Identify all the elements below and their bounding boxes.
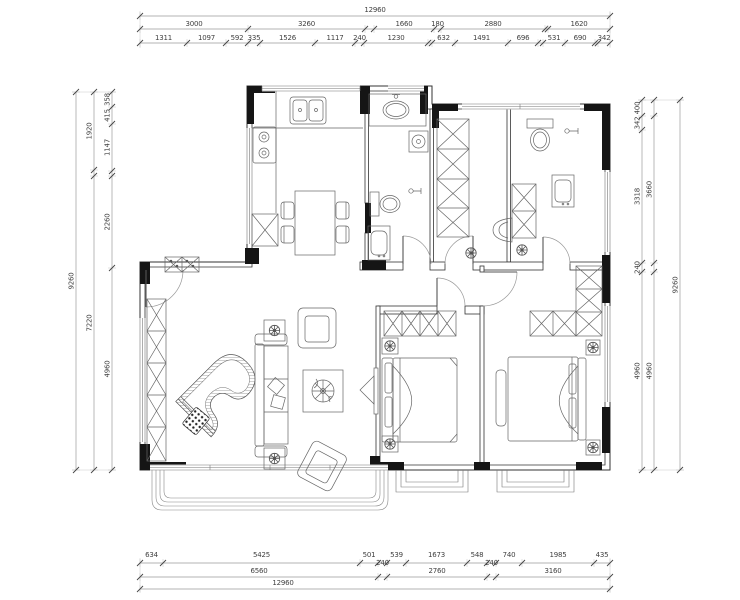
dim-chain: 656027603160 (137, 567, 613, 581)
dim-label: 4960 (634, 362, 642, 379)
dim-chain: 9260 (672, 97, 685, 473)
dim-label: 1147 (104, 139, 112, 156)
entry-shoe-cabinet (165, 257, 199, 272)
interior-walls (360, 91, 610, 464)
bedroom-1 (382, 311, 457, 452)
lamp-icon (588, 342, 598, 352)
dim-label: 1985 (549, 551, 566, 559)
kitchen-sink (290, 97, 326, 124)
dim-label: 335 (248, 34, 261, 42)
dim-label: 240 (376, 559, 389, 567)
storage-cabinet (512, 184, 536, 238)
bed (382, 358, 457, 442)
dim-chain: 30003260166018028801620 (137, 20, 613, 33)
dim-chain: 40034233182404960 (634, 97, 647, 473)
floor-drain-icon (517, 245, 527, 255)
cooktop (253, 127, 276, 163)
bedroom-2 (496, 266, 602, 455)
toilet (370, 192, 400, 216)
living-room (147, 257, 378, 493)
dim-chain: 12960 (137, 6, 613, 20)
dim-label: 1117 (326, 34, 343, 42)
dim-label: 548 (471, 551, 484, 559)
dim-label: 1660 (395, 20, 412, 28)
bathroom-1 (368, 94, 428, 260)
vanity (552, 175, 574, 207)
coffee-table (303, 370, 343, 412)
sofa (255, 334, 288, 457)
tv-unit (360, 368, 378, 414)
toilet (527, 119, 553, 151)
dim-chain: 36604960 (646, 97, 659, 473)
extension-lines (72, 11, 684, 592)
dim-label: 1673 (428, 551, 445, 559)
bed-bench (496, 370, 506, 426)
dim-label: 531 (548, 34, 561, 42)
dim-label: 240 (353, 34, 366, 42)
plant-icon (312, 379, 334, 402)
dim-label: 696 (517, 34, 531, 42)
dim-label: 592 (231, 34, 244, 42)
dim-label: 2260 (104, 213, 112, 230)
dim-label: 6560 (250, 567, 267, 575)
dim-label: 1491 (473, 34, 490, 42)
dim-label: 342 (634, 117, 642, 130)
dim-label: 4960 (646, 362, 654, 379)
dim-label: 2880 (484, 20, 501, 28)
lamp-icon (385, 341, 395, 351)
dim-label: 2760 (428, 567, 445, 575)
dim-label: 1230 (387, 34, 404, 42)
dim-label: 7220 (86, 314, 94, 331)
dim-label: 1311 (155, 34, 172, 42)
dim-label: 180 (431, 20, 444, 28)
dim-label: 632 (437, 34, 450, 42)
wardrobe (530, 266, 602, 336)
storage-cabinet-column (147, 299, 166, 461)
lamp-icon (588, 442, 598, 452)
dim-chain: 1311109759233515261117240123063214916965… (137, 34, 613, 47)
dim-label: 240 (634, 261, 642, 274)
vanity-sink (369, 94, 426, 126)
dim-label: 12960 (272, 579, 293, 587)
dim-label: 539 (390, 551, 403, 559)
faucet-icon (565, 128, 578, 134)
fridge (252, 214, 278, 246)
doors (146, 236, 570, 307)
dim-chain: 634542550124053916735482407401985435 (137, 551, 613, 567)
dim-label: 634 (145, 551, 159, 559)
dim-label: 3000 (185, 20, 202, 28)
washing-machine (409, 131, 428, 152)
dim-chain: 9260 (68, 89, 81, 473)
dim-label: 4960 (104, 360, 112, 377)
wardrobe-column (437, 119, 469, 237)
dim-label: 1920 (86, 122, 94, 139)
dim-label: 1526 (279, 34, 297, 42)
dim-label: 342 (598, 34, 611, 42)
floor-plan-canvas: 1296030003260166018028801620131110975923… (0, 0, 740, 600)
dim-label: 400 (634, 102, 642, 115)
faucet-icon (409, 188, 421, 194)
dim-label: 690 (574, 34, 587, 42)
side-table (264, 320, 285, 341)
dim-label: 1620 (570, 20, 587, 28)
dim-label: 3660 (646, 181, 654, 198)
dim-label: 12960 (364, 6, 385, 14)
dining-table (281, 191, 349, 255)
dim-label: 501 (363, 551, 376, 559)
bed (496, 357, 586, 441)
dim-label: 415 (104, 109, 112, 122)
dim-label: 9260 (68, 272, 76, 289)
dim-label: 3260 (298, 20, 315, 28)
floor-drain-icon (466, 248, 476, 258)
dim-label: 358 (104, 93, 112, 106)
balcony (152, 470, 388, 510)
dim-label: 3160 (544, 567, 561, 575)
dim-label: 3318 (634, 188, 642, 205)
dim-label: 740 (503, 551, 516, 559)
dim-label: 1097 (198, 34, 215, 42)
lower-vanity (368, 226, 390, 260)
dim-label: 9260 (672, 276, 680, 293)
armchair (298, 308, 336, 348)
dim-chain: 358415114722604960 (104, 89, 117, 473)
dim-chain: 12960 (137, 579, 613, 593)
wardrobe (384, 311, 456, 336)
dim-label: 5425 (253, 551, 270, 559)
floor-plan-drawing: 1296030003260166018028801620131110975923… (0, 0, 740, 600)
walk-in-closet (437, 119, 512, 258)
bathroom-2 (512, 119, 578, 255)
lamp-icon (385, 439, 395, 449)
dim-label: 240 (485, 559, 498, 567)
dim-chain: 19207220 (86, 89, 99, 473)
dim-label: 435 (596, 551, 609, 559)
kitchen (252, 91, 363, 255)
